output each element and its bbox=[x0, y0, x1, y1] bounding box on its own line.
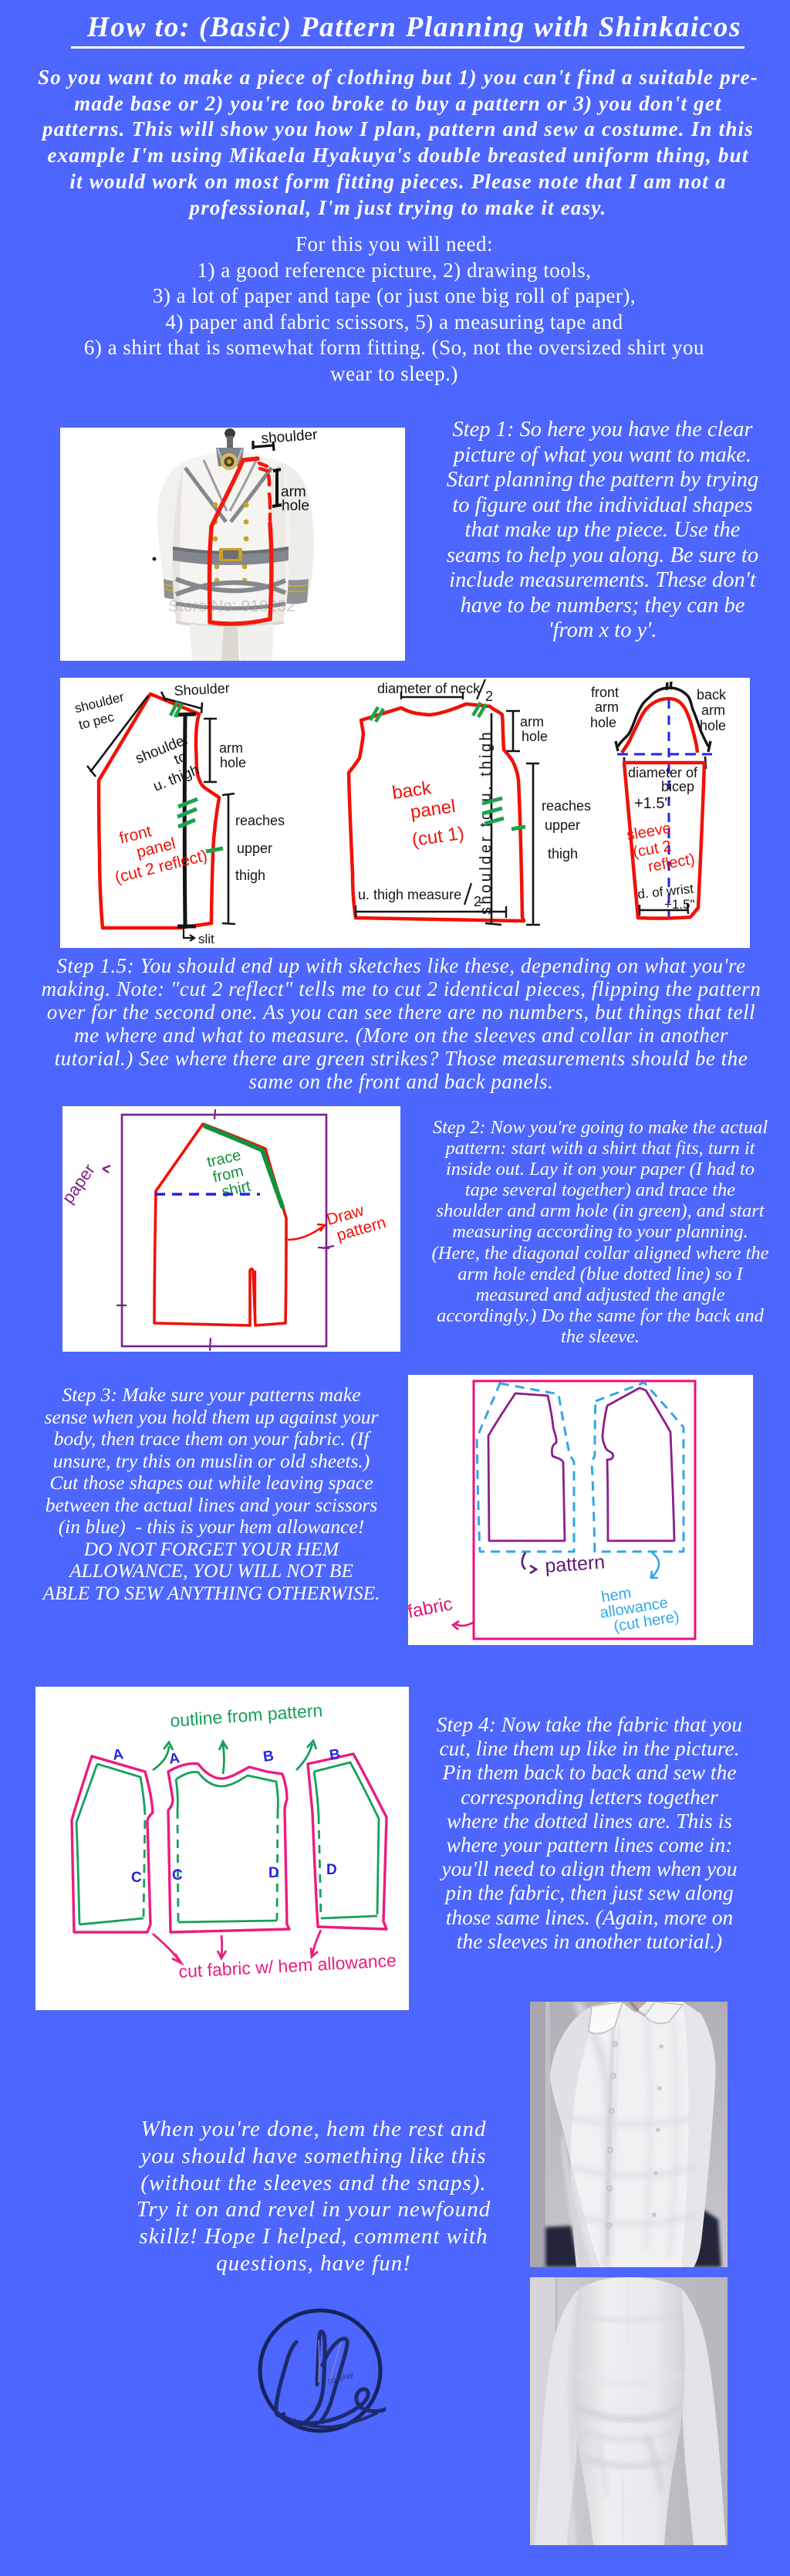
svg-text:pattern: pattern bbox=[544, 1552, 606, 1577]
svg-text:B: B bbox=[262, 1748, 275, 1765]
svg-text:diameter of neck: diameter of neck bbox=[377, 681, 481, 696]
svg-text:arm: arm bbox=[595, 699, 619, 715]
svg-text:Store No: 918232: Store No: 918232 bbox=[168, 597, 295, 615]
svg-text:outline from pattern: outline from pattern bbox=[170, 1700, 324, 1731]
svg-text:(cut 1): (cut 1) bbox=[410, 823, 465, 851]
svg-text:bicep: bicep bbox=[661, 779, 694, 794]
svg-text:slit: slit bbox=[198, 932, 214, 946]
svg-text:thigh: thigh bbox=[235, 868, 265, 883]
svg-text:arm: arm bbox=[520, 714, 544, 729]
svg-text:2: 2 bbox=[485, 689, 493, 704]
svg-text:hole: hole bbox=[522, 729, 548, 744]
svg-text:diameter of: diameter of bbox=[628, 765, 698, 780]
svg-text:u. thigh: u. thigh bbox=[151, 762, 202, 795]
svg-text:arm: arm bbox=[701, 702, 725, 718]
svg-text:fabric: fabric bbox=[408, 1593, 454, 1623]
svg-text:Shoulder: Shoulder bbox=[174, 680, 230, 699]
svg-text:B: B bbox=[329, 1746, 342, 1764]
svg-text:C: C bbox=[172, 1867, 183, 1884]
svg-text:cut fabric w/ hem allowance: cut fabric w/ hem allowance bbox=[178, 1950, 397, 1982]
svg-text:D: D bbox=[326, 1862, 337, 1878]
svg-text:reaches: reaches bbox=[235, 813, 285, 828]
svg-text:upper: upper bbox=[237, 841, 272, 856]
svg-text:hole: hole bbox=[220, 755, 246, 770]
svg-text:hole: hole bbox=[700, 718, 726, 733]
svg-text:hole: hole bbox=[282, 498, 309, 514]
svg-text:D: D bbox=[268, 1865, 279, 1881]
svg-text:arm: arm bbox=[219, 740, 243, 756]
svg-text:A: A bbox=[168, 1750, 181, 1768]
svg-text:+1.5": +1.5" bbox=[634, 795, 670, 812]
svg-text:thigh: thigh bbox=[548, 846, 578, 861]
svg-text:u. thigh measure: u. thigh measure bbox=[358, 887, 461, 902]
svg-text:back: back bbox=[697, 687, 727, 702]
svg-text:reaches: reaches bbox=[542, 798, 591, 814]
svg-text:upper: upper bbox=[545, 817, 580, 833]
svg-text:2: 2 bbox=[474, 894, 481, 909]
svg-text:A: A bbox=[112, 1746, 125, 1764]
svg-text:hole: hole bbox=[590, 715, 616, 730]
svg-text:paper: paper bbox=[62, 1160, 99, 1207]
svg-text:C: C bbox=[131, 1870, 142, 1886]
svg-text:front: front bbox=[591, 685, 619, 700]
svg-text:shoulder: shoulder bbox=[261, 428, 319, 447]
